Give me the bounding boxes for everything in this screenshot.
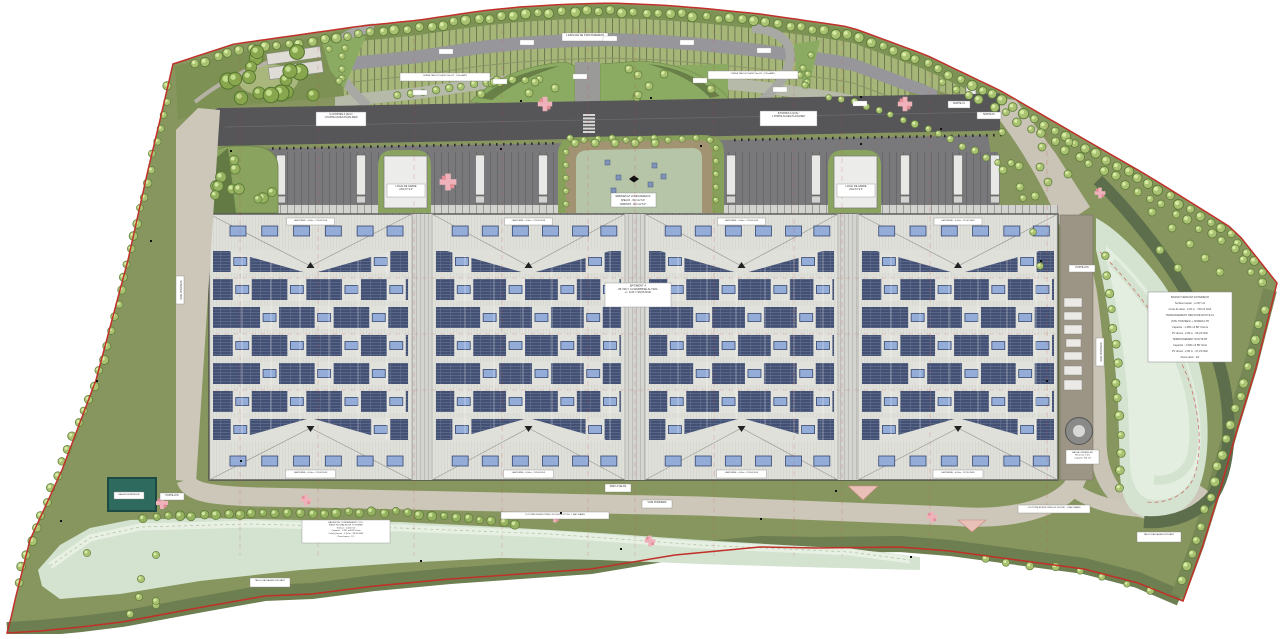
svg-text:Reservoir 7,3m: Reservoir 7,3m — [1075, 454, 1090, 457]
svg-text:TALUS PAYSAGER EXISTANT: TALUS PAYSAGER EXISTANT — [255, 579, 286, 582]
svg-text:(725x TRAVEES) + NOIRES LTD: (725x TRAVEES) + NOIRES LTD — [1171, 319, 1209, 323]
svg-text:1 PORTE ACCES PLAIN-PIED: 1 PORTE ACCES PLAIN-PIED — [325, 116, 358, 119]
svg-text:PORTILLON: PORTILLON — [166, 495, 179, 497]
svg-text:LANTERNE - 4,00m - 112,60 NGF: LANTERNE - 4,00m - 112,60 NGF — [294, 219, 328, 222]
svg-text:TERRASSEMENT DECOUPE ROUTE LV: TERRASSEMENT DECOUPE ROUTE LV — [1166, 313, 1215, 317]
svg-text:PV dimax : 2,80 m - 96,23 NGF: PV dimax : 2,80 m - 96,23 NGF — [1172, 331, 1209, 335]
svg-text:Cote(s) basse : 1,50 m - 96,53: Cote(s) basse : 1,50 m - 96,53 NGF — [329, 532, 364, 535]
svg-text:VERFS/P4 - 98,0 m2 S.P.: VERFS/P4 - 98,0 m2 S.P. — [620, 204, 646, 206]
svg-text:Pente talus : 3/2: Pente talus : 3/2 — [1181, 355, 1200, 359]
svg-text:CHENE TAILLE PLACE 24m HT - 12: CHENE TAILLE PLACE 24m HT - 120x AMPL — [731, 72, 776, 75]
svg-text:SORTIE VL: SORTIE VL — [953, 103, 966, 105]
svg-text:VOIE POMPIERS: VOIE POMPIERS — [648, 501, 667, 504]
svg-text:BASSIN DE CONFINEMENT / VOL:: BASSIN DE CONFINEMENT / VOL: — [328, 521, 363, 524]
svg-text:1 PORTE ACCES PLAIN-PIED: 1 PORTE ACCES PLAIN-PIED — [772, 115, 805, 118]
svg-text:LANTERNE - 4,00m - 112,60 NGF: LANTERNE - 4,00m - 112,60 NGF — [512, 471, 546, 474]
svg-text:CLOTURE RIGIDE TREILLIS SOUDE: CLOTURE RIGIDE TREILLIS SOUDE - 1 BAC RA… — [1028, 506, 1081, 509]
svg-text:VOIE POMPIERS: VOIE POMPIERS — [1100, 342, 1103, 361]
svg-text:VOIE POMPIERS: VOIE POMPIERS — [180, 280, 183, 299]
svg-text:LANTERNE - 4,00m - 112,60 NGF: LANTERNE - 4,00m - 112,60 NGF — [725, 219, 759, 222]
svg-text:Perre basse : 2,1: Perre basse : 2,1 — [338, 535, 355, 538]
svg-text:PV dimax : 2,80 m - 97,23 NGF: PV dimax : 2,80 m - 97,23 NGF — [1172, 349, 1209, 353]
svg-text:1 ESPLACE DE STATIONNEMENT: 1 ESPLACE DE STATIONNEMENT — [566, 34, 604, 37]
svg-text:SPEAUX - 39,0 m2 S.P.: SPEAUX - 39,0 m2 S.P. — [621, 199, 646, 202]
svg-text:Capacite : 1.590 m3 BP Verts: Capacite : 1.590 m3 BP Verts — [1173, 343, 1208, 347]
svg-text:PORTILLON: PORTILLON — [1076, 267, 1089, 269]
svg-text:Surface : 2.400 m2: Surface : 2.400 m2 — [337, 526, 356, 529]
svg-text:+/- 0,00 = 99,05 NGF: +/- 0,00 = 99,05 NGF — [625, 290, 652, 294]
svg-text:CHENE TAILLE PLACE 24m HT - 12: CHENE TAILLE PLACE 24m HT - 120x AMPL — [423, 74, 468, 77]
svg-text:Capacite 750 m3: Capacite 750 m3 — [1074, 456, 1091, 459]
svg-text:LANTERNE - 4,00m - 112,60 NGF: LANTERNE - 4,00m - 112,60 NGF — [941, 219, 975, 222]
svg-text:BACHE SPRINKLER: BACHE SPRINKLER — [1072, 451, 1093, 454]
svg-text:SORTIE PL: SORTIE PL — [983, 114, 996, 116]
svg-text:TALUS PAYSAGER EXISTANT: TALUS PAYSAGER EXISTANT — [1144, 533, 1175, 536]
svg-text:Surface bassin : 2.207 m2: Surface bassin : 2.207 m2 — [1175, 301, 1206, 305]
svg-text:Capacite : 1.407 m3 EP Vmax: Capacite : 1.407 m3 EP Vmax — [331, 529, 361, 532]
svg-text:Crete de talus : 2,20 m - 746,: Crete de talus : 2,20 m - 746,21 NGF — [1169, 307, 1212, 311]
svg-text:LANTERNE - 4,00m - 112,60 NGF: LANTERNE - 4,00m - 112,60 NGF — [294, 471, 328, 474]
svg-text:EMBASES ET LOGES RESEAUX: EMBASES ET LOGES RESEAUX — [616, 195, 651, 198]
svg-text:LANTERNE - 4,00m - 112,60 NGF: LANTERNE - 4,00m - 112,60 NGF — [725, 471, 759, 474]
svg-text:LANTERNE - 4,00m - 112,60 NGF: LANTERNE - 4,00m - 112,60 NGF — [941, 471, 975, 474]
svg-text:EAUX PLUVIALES DE TOITURES: EAUX PLUVIALES DE TOITURES — [329, 524, 363, 527]
svg-text:CLOTURE RIGIDE TREILLIS SOUDE: CLOTURE RIGIDE TREILLIS SOUDE HT 2M - 1 … — [525, 513, 585, 516]
svg-text:Capacite : 1.485 m3 BP Vcents: Capacite : 1.485 m3 BP Vcents — [1172, 325, 1209, 329]
svg-text:23x2,67 S.P.: 23x2,67 S.P. — [849, 188, 863, 191]
svg-text:23x2,67 S.P.: 23x2,67 S.P. — [399, 188, 413, 191]
svg-text:BASSIN SPRINKLER: BASSIN SPRINKLER — [118, 493, 139, 496]
svg-text:LANTERNE - 4,00m - 112,60 NGF: LANTERNE - 4,00m - 112,60 NGF — [512, 219, 546, 222]
svg-text:TERRASSEMENT ROUTE BT: TERRASSEMENT ROUTE BT — [1172, 337, 1208, 341]
svg-text:BASSIN VERSANT EXTERIEUR: BASSIN VERSANT EXTERIEUR — [1171, 295, 1209, 299]
svg-text:PARC A VELOS: PARC A VELOS — [610, 485, 627, 488]
